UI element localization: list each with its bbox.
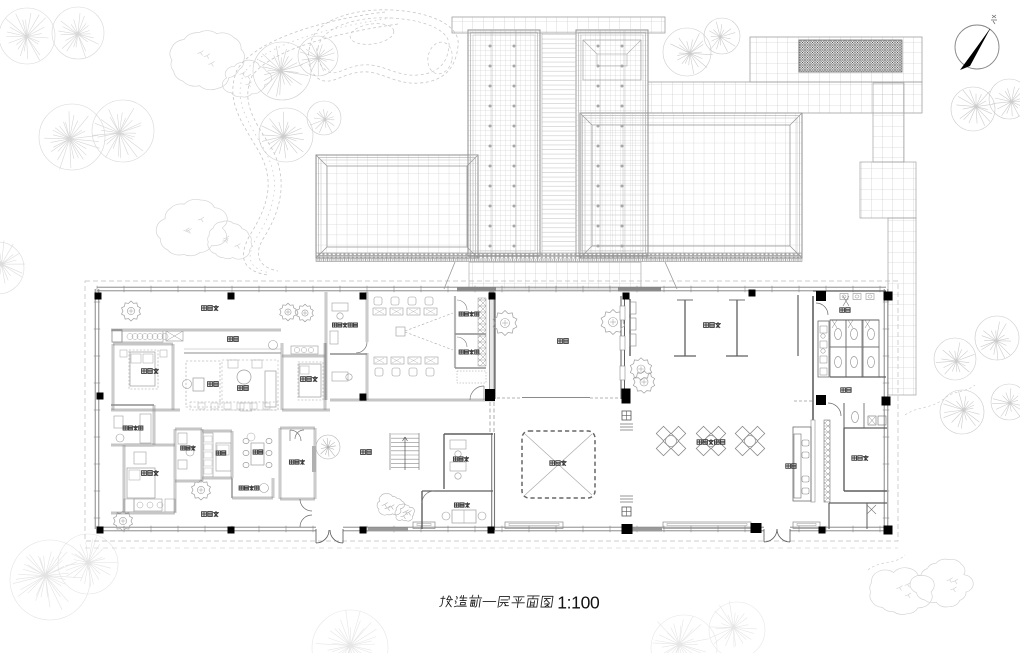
svg-text:1:100: 1:100 [557,593,600,613]
